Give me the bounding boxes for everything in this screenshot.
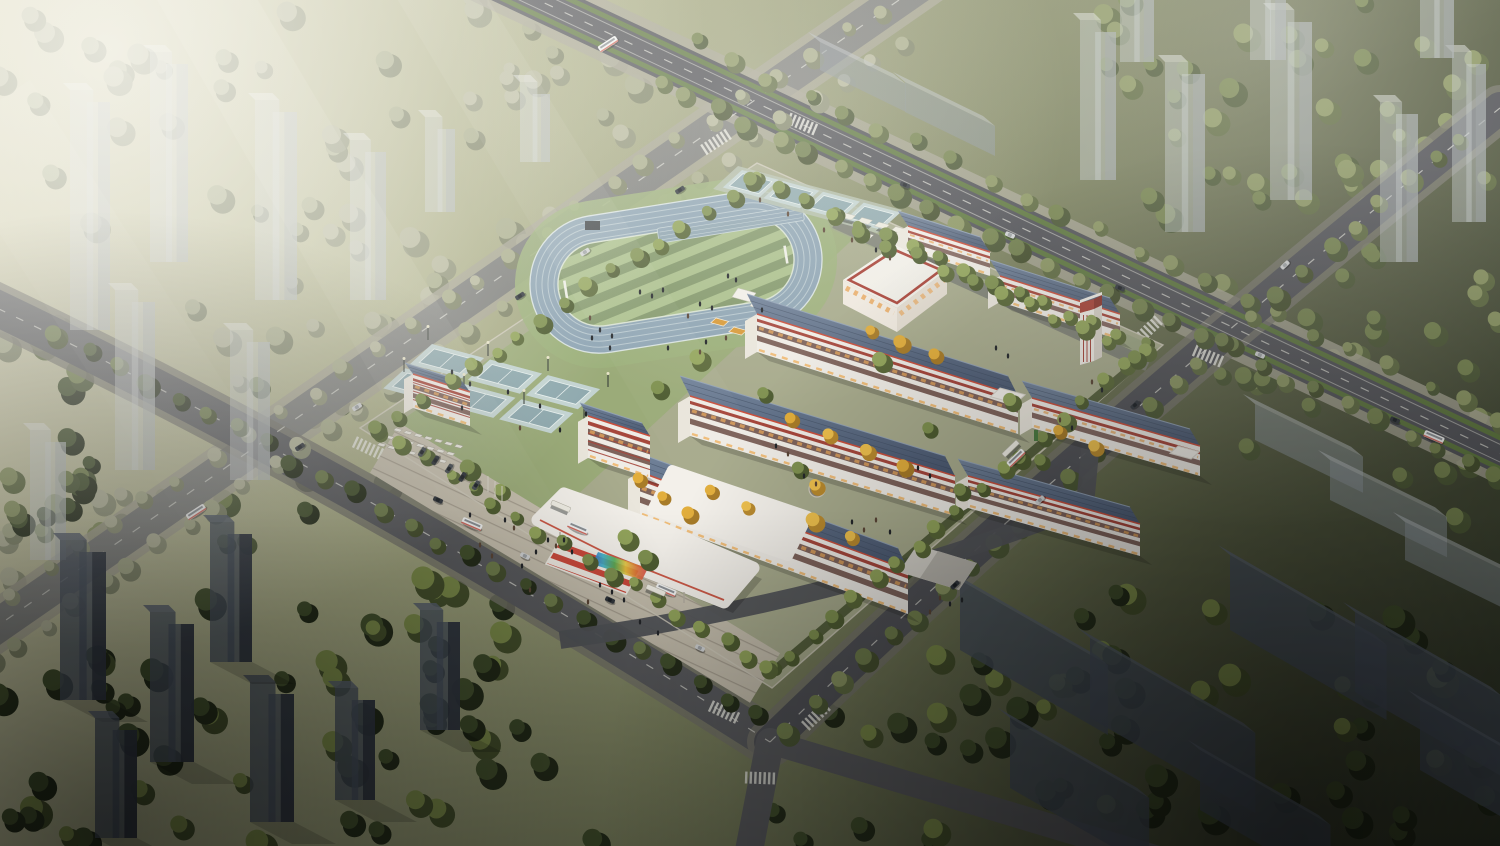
aerial-rendering: Aerial architectural rendering of a scho… [0, 0, 1500, 846]
atmosphere-haze [0, 0, 1500, 846]
rendering-canvas: Aerial architectural rendering of a scho… [0, 0, 1500, 846]
